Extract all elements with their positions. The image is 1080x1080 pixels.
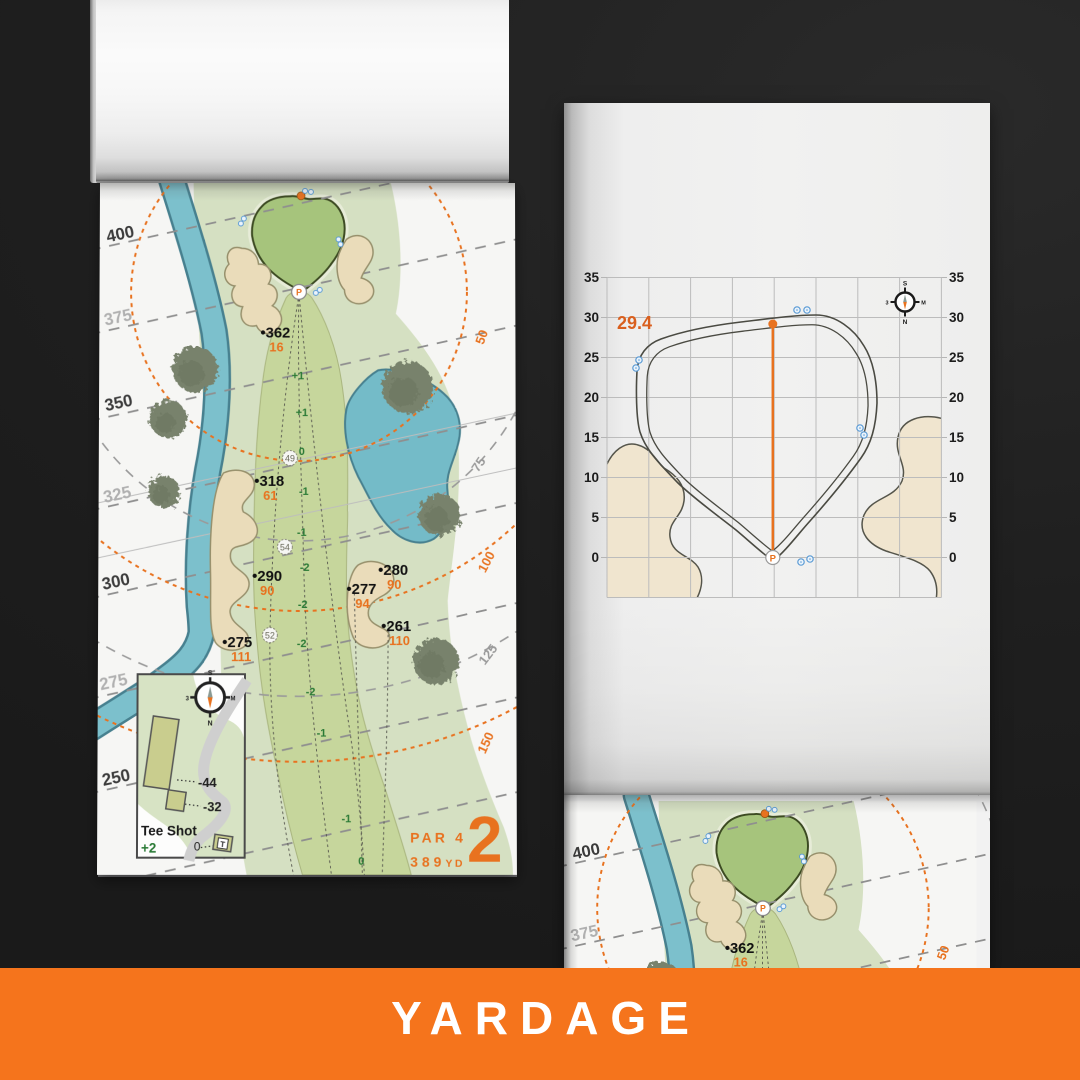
svg-text:20: 20 xyxy=(949,390,964,405)
svg-text:35: 35 xyxy=(584,270,600,285)
svg-text:S: S xyxy=(903,281,908,288)
svg-text:25: 25 xyxy=(584,350,600,365)
svg-text:15: 15 xyxy=(584,430,600,445)
svg-text:5: 5 xyxy=(949,510,957,525)
svg-text:25: 25 xyxy=(949,350,965,365)
svg-text:15: 15 xyxy=(949,430,965,445)
svg-text:30: 30 xyxy=(584,310,599,325)
svg-text:N: N xyxy=(903,319,908,326)
svg-text:30: 30 xyxy=(949,310,964,325)
svg-text:0: 0 xyxy=(591,550,599,565)
svg-text:20: 20 xyxy=(584,390,599,405)
svg-text:10: 10 xyxy=(584,470,599,485)
svg-text:5: 5 xyxy=(591,510,599,525)
svg-text:M: M xyxy=(921,301,926,307)
svg-text:3: 3 xyxy=(885,301,888,307)
svg-text:35: 35 xyxy=(949,270,965,285)
svg-text:0: 0 xyxy=(949,550,957,565)
svg-text:29.4: 29.4 xyxy=(617,313,652,333)
svg-text:P: P xyxy=(770,554,777,565)
svg-text:10: 10 xyxy=(949,470,964,485)
